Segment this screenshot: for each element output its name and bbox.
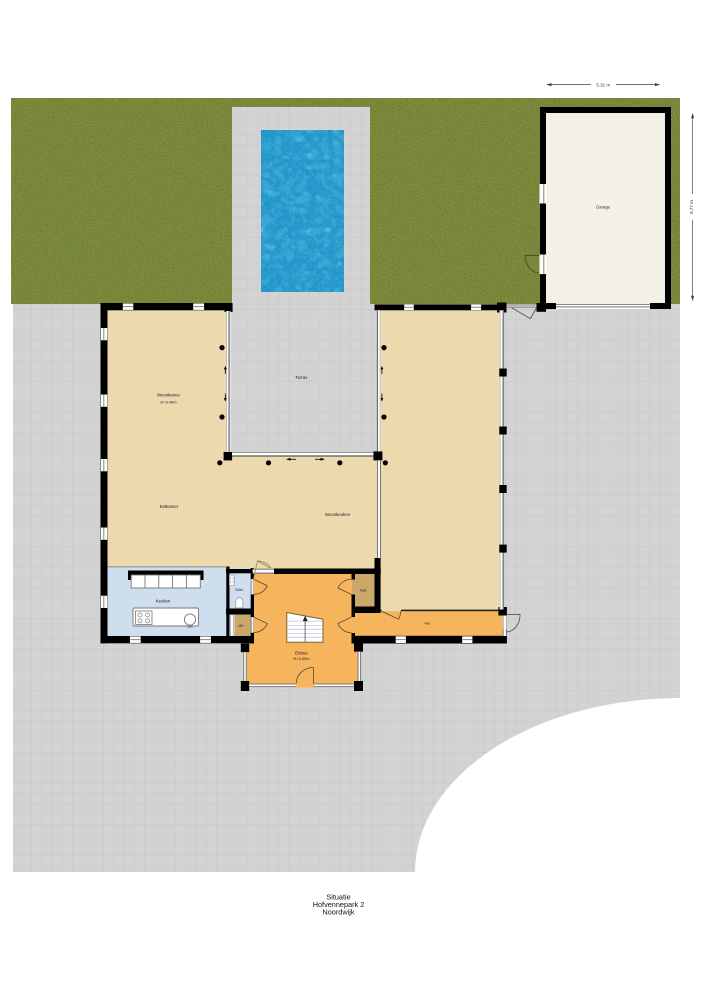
svg-text:Terras: Terras bbox=[295, 375, 307, 380]
svg-text:Eetkamer: Eetkamer bbox=[160, 504, 179, 509]
svg-text:Noordwijk: Noordwijk bbox=[322, 908, 354, 917]
svg-text:Woonkamer: Woonkamer bbox=[157, 393, 181, 398]
svg-text:Keuken: Keuken bbox=[156, 598, 171, 603]
svg-text:5.31 m: 5.31 m bbox=[596, 82, 610, 87]
svg-text:Kast: Kast bbox=[360, 589, 367, 593]
svg-text:Entree: Entree bbox=[295, 650, 308, 655]
svg-text:Woonkeuken: Woonkeuken bbox=[325, 512, 351, 517]
svg-text:Toilet: Toilet bbox=[235, 588, 243, 592]
svg-text:Hal: Hal bbox=[424, 622, 429, 626]
svg-text:8.77 m: 8.77 m bbox=[689, 200, 694, 214]
svg-text:MK: MK bbox=[238, 624, 244, 628]
svg-text:H=3.49m: H=3.49m bbox=[161, 400, 177, 405]
svg-text:H=3.09m: H=3.09m bbox=[294, 656, 310, 661]
svg-text:Garage: Garage bbox=[596, 205, 611, 210]
